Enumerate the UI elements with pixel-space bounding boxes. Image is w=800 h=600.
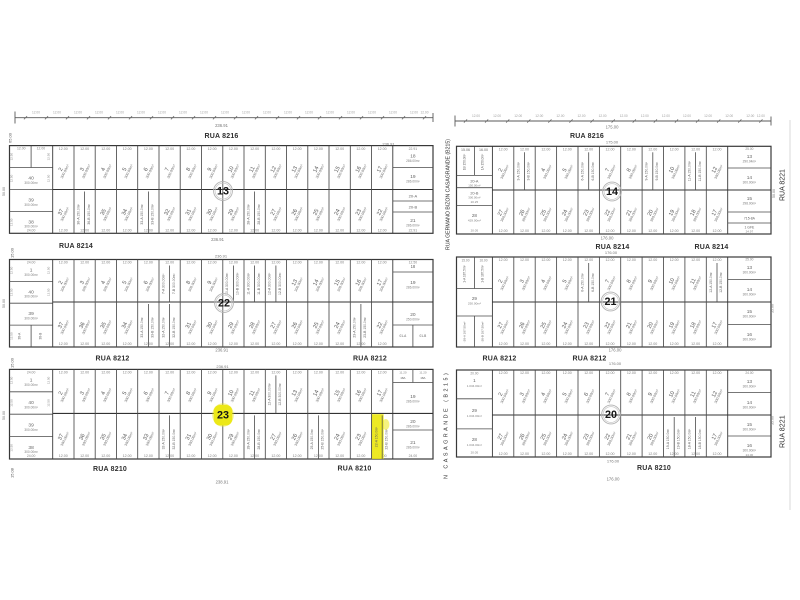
svg-text:12.00: 12.00 <box>520 148 529 152</box>
svg-text:300.00m²: 300.00m² <box>24 181 37 185</box>
svg-text:12.00: 12.00 <box>123 147 132 151</box>
svg-text:33-A 150.0m²: 33-A 150.0m² <box>140 203 144 224</box>
svg-text:1: 1 <box>473 378 476 383</box>
svg-text:12.00: 12.00 <box>335 229 344 233</box>
svg-text:12.00: 12.00 <box>271 454 280 458</box>
svg-text:12.00: 12.00 <box>293 229 302 233</box>
svg-text:23-A 150.0m²: 23-A 150.0m² <box>353 316 357 337</box>
svg-text:300.00m²: 300.00m² <box>743 293 756 297</box>
svg-text:12.00: 12.00 <box>250 371 259 375</box>
svg-text:18A: 18A <box>400 376 405 380</box>
svg-text:12.00: 12.00 <box>271 342 280 346</box>
svg-text:12.00: 12.00 <box>563 342 572 346</box>
svg-text:23-B 150.0m²: 23-B 150.0m² <box>363 316 367 337</box>
svg-text:28-A 150.0m²: 28-A 150.0m² <box>246 203 250 224</box>
svg-text:50.00: 50.00 <box>2 299 6 308</box>
svg-text:11.20: 11.20 <box>419 370 427 374</box>
svg-text:12.00: 12.00 <box>606 452 615 456</box>
svg-text:28: 28 <box>472 213 478 218</box>
svg-text:12.50: 12.50 <box>10 444 14 452</box>
svg-text:12.00: 12.00 <box>59 342 68 346</box>
svg-text:12.00: 12.00 <box>541 452 550 456</box>
svg-text:1-B 187.5m²: 1-B 187.5m² <box>481 265 485 283</box>
svg-text:12.00: 12.00 <box>179 111 187 115</box>
svg-text:1.034.00m²: 1.034.00m² <box>467 414 482 418</box>
svg-text:300.00m²: 300.00m² <box>24 317 37 321</box>
svg-text:286.00m²: 286.00m² <box>406 400 419 404</box>
svg-text:12.00: 12.00 <box>80 261 89 265</box>
svg-text:6-B 150.0m²: 6-B 150.0m² <box>591 272 595 292</box>
svg-text:6-B 150.0m²: 6-B 150.0m² <box>591 161 595 181</box>
svg-text:12.00: 12.00 <box>314 261 323 265</box>
svg-text:12.00: 12.00 <box>563 452 572 456</box>
svg-text:7-A 300.00m²: 7-A 300.00m² <box>161 273 165 294</box>
svg-text:24.00: 24.00 <box>745 371 753 375</box>
svg-text:12.00: 12.00 <box>335 261 344 265</box>
svg-text:33-B 150.0m²: 33-B 150.0m² <box>151 203 155 224</box>
svg-text:12.00: 12.00 <box>713 342 722 346</box>
svg-text:1.034.00m²: 1.034.00m² <box>467 443 482 447</box>
svg-text:12.00: 12.00 <box>250 342 259 346</box>
svg-text:N CASAGRANDE (B215): N CASAGRANDE (B215) <box>444 371 450 479</box>
svg-text:12.00: 12.00 <box>186 229 195 233</box>
svg-text:12.00: 12.00 <box>584 371 593 375</box>
svg-text:12-B 300.00m²: 12-B 300.00m² <box>278 382 282 405</box>
svg-text:12.00: 12.00 <box>520 342 529 346</box>
svg-text:50.00: 50.00 <box>2 411 6 420</box>
svg-text:12.00: 12.00 <box>314 229 323 233</box>
svg-text:300.00m²: 300.00m² <box>24 405 37 409</box>
svg-text:12.00: 12.00 <box>101 342 110 346</box>
svg-text:-28-A 187.50m²: -28-A 187.50m² <box>463 322 467 343</box>
svg-text:RUA 8214: RUA 8214 <box>694 244 728 251</box>
svg-text:12.00: 12.00 <box>250 261 259 265</box>
svg-text:12.00: 12.00 <box>208 342 217 346</box>
svg-text:715-8A: 715-8A <box>744 217 756 221</box>
svg-text:RUA 8214: RUA 8214 <box>59 243 93 250</box>
svg-text:20-B: 20-B <box>409 205 418 210</box>
svg-text:12.00: 12.00 <box>541 229 550 233</box>
svg-text:11-A 150.0m²: 11-A 150.0m² <box>687 160 691 181</box>
svg-text:1A 150.0m²: 1A 150.0m² <box>481 154 485 170</box>
svg-text:12.00: 12.00 <box>293 454 302 458</box>
svg-text:22-B 150.0m²: 22-B 150.0m² <box>384 428 388 449</box>
svg-text:12.50: 12.50 <box>10 288 14 296</box>
svg-text:25-A 150.0m²: 25-A 150.0m² <box>310 428 314 449</box>
svg-text:12.00: 12.00 <box>648 452 657 456</box>
svg-text:12.00: 12.00 <box>293 342 302 346</box>
svg-text:12.00: 12.00 <box>670 148 679 152</box>
svg-text:12.00: 12.00 <box>208 229 217 233</box>
svg-text:176.00: 176.00 <box>609 361 622 366</box>
svg-text:-28-B 187.50m²: -28-B 187.50m² <box>481 322 485 343</box>
svg-text:12.00: 12.00 <box>263 111 271 115</box>
svg-text:12-A 300.00m²: 12-A 300.00m² <box>268 382 272 405</box>
svg-text:RUA 8210: RUA 8210 <box>337 465 371 472</box>
svg-text:12.00: 12.00 <box>347 111 355 115</box>
svg-text:12.00: 12.00 <box>378 147 387 151</box>
svg-text:12-A 150.0m²: 12-A 150.0m² <box>709 271 713 292</box>
svg-text:12.00: 12.00 <box>746 114 754 118</box>
svg-text:33-B 150.0m²: 33-B 150.0m² <box>151 316 155 337</box>
svg-text:286.00m²: 286.00m² <box>406 446 419 450</box>
svg-text:12.00: 12.00 <box>123 454 132 458</box>
svg-text:18-B 150.0m²: 18-B 150.0m² <box>698 428 702 449</box>
svg-text:12.00: 12.00 <box>59 229 68 233</box>
svg-text:28-B 150.0m²: 28-B 150.0m² <box>257 428 261 449</box>
svg-text:22.91: 22.91 <box>409 229 418 233</box>
svg-text:12.00: 12.00 <box>229 342 238 346</box>
svg-text:12.00: 12.00 <box>80 342 89 346</box>
svg-text:RUA 8216: RUA 8216 <box>204 133 238 140</box>
svg-text:238.91: 238.91 <box>216 479 229 484</box>
svg-text:12.00: 12.00 <box>242 111 250 115</box>
svg-text:12.00: 12.00 <box>563 258 572 262</box>
svg-text:11-A 300.00m²: 11-A 300.00m² <box>246 272 250 295</box>
svg-text:12.00: 12.00 <box>165 371 174 375</box>
svg-text:12.00: 12.00 <box>378 371 387 375</box>
svg-text:12-A 300.00m²: 12-A 300.00m² <box>268 272 272 295</box>
svg-text:12.50: 12.50 <box>10 153 14 161</box>
svg-text:12.00: 12.00 <box>520 258 529 262</box>
svg-text:36-A 150.0m²: 36-A 150.0m² <box>76 203 80 224</box>
svg-text:12.00: 12.00 <box>186 371 195 375</box>
svg-text:300.00m²: 300.00m² <box>743 385 756 389</box>
svg-text:22: 22 <box>218 298 230 310</box>
svg-text:19-A 150.0m²: 19-A 150.0m² <box>666 428 670 449</box>
svg-text:20.25: 20.25 <box>471 200 479 204</box>
svg-text:65.00: 65.00 <box>8 132 13 143</box>
svg-text:12.00: 12.00 <box>314 342 323 346</box>
svg-text:300.00m²: 300.00m² <box>743 315 756 319</box>
svg-text:22.91: 22.91 <box>409 147 418 151</box>
svg-text:23: 23 <box>217 410 229 422</box>
svg-text:12.00: 12.00 <box>293 147 302 151</box>
svg-text:12.00: 12.00 <box>229 147 238 151</box>
svg-text:12.00: 12.00 <box>520 371 529 375</box>
svg-text:12.50: 12.50 <box>10 218 14 226</box>
svg-text:12.00: 12.00 <box>378 229 387 233</box>
svg-text:12.00: 12.00 <box>563 229 572 233</box>
svg-text:12.00: 12.00 <box>314 371 323 375</box>
svg-text:12.00: 12.00 <box>101 454 110 458</box>
svg-text:12.00: 12.00 <box>670 258 679 262</box>
svg-text:18-A 150.0m²: 18-A 150.0m² <box>687 428 691 449</box>
svg-text:12.50: 12.50 <box>10 266 14 274</box>
svg-text:12.00: 12.00 <box>335 371 344 375</box>
svg-text:12.00: 12.00 <box>271 261 280 265</box>
svg-text:6-A 150.0m²: 6-A 150.0m² <box>581 272 585 291</box>
svg-text:RUA 8216: RUA 8216 <box>570 133 604 140</box>
svg-text:12.00: 12.00 <box>563 148 572 152</box>
svg-text:12.00: 12.00 <box>389 111 397 115</box>
svg-text:24.00: 24.00 <box>746 453 754 457</box>
svg-text:36-B 150.0m²: 36-B 150.0m² <box>87 203 91 224</box>
svg-text:12.00: 12.00 <box>293 261 302 265</box>
svg-text:12.00: 12.00 <box>101 261 110 265</box>
svg-text:286.00m²: 286.00m² <box>406 224 419 228</box>
svg-text:15.00: 15.00 <box>462 259 470 263</box>
svg-text:12.00: 12.00 <box>59 261 68 265</box>
svg-text:25.00: 25.00 <box>745 147 753 151</box>
svg-text:12.00: 12.00 <box>305 111 313 115</box>
svg-text:12.00: 12.00 <box>541 148 550 152</box>
svg-text:300.00m²: 300.00m² <box>743 428 756 432</box>
svg-text:176.00: 176.00 <box>607 458 620 463</box>
svg-text:33-A 150.0m²: 33-A 150.0m² <box>140 316 144 337</box>
svg-text:15.00: 15.00 <box>10 247 15 258</box>
svg-text:12.00: 12.00 <box>74 111 82 115</box>
svg-text:01-B: 01-B <box>420 334 427 338</box>
svg-text:10-B 300.00m²: 10-B 300.00m² <box>236 272 240 295</box>
svg-text:12.50: 12.50 <box>47 376 51 384</box>
svg-text:12.00: 12.00 <box>541 371 550 375</box>
svg-text:1-A 187.5m²: 1-A 187.5m² <box>463 265 467 282</box>
svg-text:300.00m²: 300.00m² <box>743 406 756 410</box>
svg-text:12.00: 12.00 <box>578 114 586 118</box>
svg-text:6-A 150.0m²: 6-A 150.0m² <box>581 161 585 180</box>
svg-text:28-A 150.0m²: 28-A 150.0m² <box>246 428 250 449</box>
svg-text:12.00: 12.00 <box>606 148 615 152</box>
svg-text:9-B 150.0m²: 9-B 150.0m² <box>655 161 659 181</box>
svg-text:12.00: 12.00 <box>691 229 700 233</box>
svg-text:12.00: 12.00 <box>165 229 174 233</box>
svg-text:12.00: 12.00 <box>101 147 110 151</box>
svg-text:12.00: 12.00 <box>284 111 292 115</box>
svg-text:RUA 8212: RUA 8212 <box>353 355 387 362</box>
svg-text:7-B 300.00m²: 7-B 300.00m² <box>172 273 176 294</box>
svg-text:12.00: 12.00 <box>356 229 365 233</box>
svg-text:32-B 150.0m²: 32-B 150.0m² <box>172 316 176 337</box>
svg-text:300.00m²: 300.00m² <box>468 195 480 199</box>
svg-text:10-A 300.00m²: 10-A 300.00m² <box>225 272 229 295</box>
svg-text:1.034.00m²: 1.034.00m² <box>467 384 482 388</box>
svg-text:11-B 150.0m²: 11-B 150.0m² <box>698 160 702 181</box>
svg-text:32-B 150.0m²: 32-B 150.0m² <box>172 428 176 449</box>
svg-text:12.00: 12.00 <box>144 261 153 265</box>
svg-text:12.50: 12.50 <box>10 399 14 407</box>
svg-text:12.50: 12.50 <box>10 174 14 182</box>
svg-text:12.00: 12.00 <box>293 371 302 375</box>
svg-text:12.00: 12.00 <box>662 114 670 118</box>
svg-text:12.00: 12.00 <box>520 229 529 233</box>
svg-text:429.00m²: 429.00m² <box>468 219 481 223</box>
svg-text:12.00: 12.00 <box>599 114 607 118</box>
svg-text:12.00: 12.00 <box>208 261 217 265</box>
svg-text:12.00: 12.00 <box>123 261 132 265</box>
svg-text:11.20: 11.20 <box>399 370 407 374</box>
svg-text:12.00: 12.00 <box>186 342 195 346</box>
svg-text:286.00m²: 286.00m² <box>406 425 419 429</box>
svg-text:12.00: 12.00 <box>620 114 628 118</box>
svg-text:38-B: 38-B <box>39 333 43 340</box>
svg-text:50.00: 50.00 <box>2 187 6 196</box>
svg-text:300.00m²: 300.00m² <box>24 203 37 207</box>
svg-text:RUA 8212: RUA 8212 <box>572 355 606 362</box>
svg-text:236.91: 236.91 <box>216 364 229 369</box>
svg-text:250.00m²: 250.00m² <box>468 302 481 306</box>
svg-text:12.00: 12.00 <box>335 147 344 151</box>
svg-text:12.00: 12.00 <box>499 452 508 456</box>
svg-text:12.50: 12.50 <box>10 376 14 384</box>
svg-text:12.00: 12.00 <box>691 342 700 346</box>
svg-text:12.00: 12.00 <box>356 261 365 265</box>
svg-text:236.91: 236.91 <box>215 253 228 258</box>
svg-text:12.00: 12.00 <box>101 371 110 375</box>
svg-text:24.00: 24.00 <box>27 454 36 458</box>
svg-text:13: 13 <box>217 186 229 198</box>
svg-text:12.00: 12.00 <box>535 114 543 118</box>
svg-text:12.50: 12.50 <box>47 153 51 161</box>
svg-text:12.00: 12.00 <box>493 114 501 118</box>
svg-text:12.00: 12.00 <box>670 342 679 346</box>
svg-text:12.00: 12.00 <box>584 342 593 346</box>
svg-text:236.91: 236.91 <box>215 347 228 352</box>
svg-text:12.00: 12.00 <box>229 229 238 233</box>
svg-text:28-B 150.0m²: 28-B 150.0m² <box>257 203 261 224</box>
svg-text:24.00: 24.00 <box>27 261 36 265</box>
svg-text:RUA 8212: RUA 8212 <box>482 355 516 362</box>
svg-text:20.00: 20.00 <box>470 372 478 376</box>
svg-text:12.00: 12.00 <box>378 261 387 265</box>
svg-text:12.00: 12.00 <box>335 454 344 458</box>
svg-text:12.00: 12.00 <box>713 452 722 456</box>
svg-text:12.00: 12.00 <box>627 229 636 233</box>
svg-text:300.00m²: 300.00m² <box>24 428 37 432</box>
svg-text:12.50: 12.50 <box>47 288 51 296</box>
svg-text:12.00: 12.00 <box>208 371 217 375</box>
svg-text:12.00: 12.00 <box>80 147 89 151</box>
svg-text:20.05: 20.05 <box>471 229 479 233</box>
svg-text:236.91: 236.91 <box>211 237 224 242</box>
svg-text:24.00: 24.00 <box>409 454 418 458</box>
svg-text:12.00: 12.00 <box>648 258 657 262</box>
svg-text:12.50: 12.50 <box>47 266 51 274</box>
svg-text:RUA GERMANO BIZON CASAGRANDE (: RUA GERMANO BIZON CASAGRANDE (B215) <box>446 139 452 250</box>
svg-text:12.00: 12.00 <box>144 371 153 375</box>
svg-text:RUA 8210: RUA 8210 <box>637 465 671 472</box>
svg-text:RUA 8221: RUA 8221 <box>778 415 787 448</box>
svg-text:176.00: 176.00 <box>609 347 622 352</box>
svg-text:12.00: 12.00 <box>606 229 615 233</box>
svg-text:15.06: 15.06 <box>461 148 470 152</box>
svg-text:12.00: 12.00 <box>713 258 722 262</box>
svg-text:286.00m²: 286.00m² <box>406 180 419 184</box>
svg-text:300.00m²: 300.00m² <box>743 181 756 185</box>
svg-text:21: 21 <box>604 296 616 308</box>
svg-text:12.00: 12.00 <box>683 114 691 118</box>
svg-text:12.00: 12.00 <box>514 114 522 118</box>
svg-text:12.00: 12.00 <box>116 111 124 115</box>
svg-text:12.00: 12.00 <box>101 229 110 233</box>
svg-text:12.00: 12.00 <box>648 229 657 233</box>
svg-text:12.00: 12.00 <box>95 111 103 115</box>
svg-text:19-B 150.0m²: 19-B 150.0m² <box>676 428 680 449</box>
svg-text:12.00: 12.00 <box>59 454 68 458</box>
svg-text:1B 150.0m²: 1B 150.0m² <box>463 154 467 170</box>
svg-text:29: 29 <box>472 408 478 413</box>
svg-text:12.00: 12.00 <box>208 454 217 458</box>
svg-text:12.00: 12.00 <box>123 371 132 375</box>
svg-text:12.00: 12.00 <box>691 148 700 152</box>
svg-text:286.00m²: 286.00m² <box>406 159 419 163</box>
svg-text:12-B 150.0m²: 12-B 150.0m² <box>719 271 723 292</box>
svg-text:12.00: 12.00 <box>499 371 508 375</box>
svg-text:22-A 150.0m²: 22-A 150.0m² <box>375 426 379 447</box>
svg-text:20-A: 20-A <box>409 194 418 199</box>
svg-text:28: 28 <box>472 437 478 442</box>
svg-text:01-A: 01-A <box>400 334 408 338</box>
svg-text:12.00: 12.00 <box>627 452 636 456</box>
svg-text:12.00: 12.00 <box>648 371 657 375</box>
svg-text:12.00: 12.00 <box>627 371 636 375</box>
svg-text:12.00: 12.00 <box>563 371 572 375</box>
svg-text:12.00: 12.00 <box>627 148 636 152</box>
svg-text:300.00m²: 300.00m² <box>743 338 756 342</box>
svg-text:12.00: 12.00 <box>670 229 679 233</box>
svg-text:286.00m²: 286.00m² <box>406 286 419 290</box>
svg-text:9-A 150.0m²: 9-A 150.0m² <box>645 161 649 180</box>
svg-text:176.00: 176.00 <box>601 235 614 240</box>
svg-text:12.00: 12.00 <box>186 261 195 265</box>
svg-text:12.00: 12.00 <box>53 111 61 115</box>
svg-text:3-A 150.0m²: 3-A 150.0m² <box>516 161 520 180</box>
svg-text:12.00: 12.00 <box>186 454 195 458</box>
svg-text:15.00: 15.00 <box>10 357 15 368</box>
svg-text:12.00: 12.00 <box>32 111 40 115</box>
svg-text:12.00: 12.00 <box>356 454 365 458</box>
svg-text:24.00: 24.00 <box>27 371 36 375</box>
svg-text:12.00: 12.00 <box>314 147 323 151</box>
svg-text:300.00m²: 300.00m² <box>24 273 37 277</box>
svg-text:175.00: 175.00 <box>606 140 619 145</box>
svg-text:12.00: 12.00 <box>704 114 712 118</box>
svg-text:11-B 300.00m²: 11-B 300.00m² <box>257 272 261 295</box>
svg-text:12.00: 12.00 <box>165 261 174 265</box>
svg-text:12.00: 12.00 <box>713 229 722 233</box>
svg-text:12.00: 12.00 <box>499 258 508 262</box>
svg-text:298.00m²: 298.00m² <box>743 202 756 206</box>
svg-text:3-B 150.0m²: 3-B 150.0m² <box>527 161 531 181</box>
svg-text:12.00: 12.00 <box>229 261 238 265</box>
svg-text:12.00: 12.00 <box>472 114 480 118</box>
svg-text:12.00: 12.00 <box>725 114 733 118</box>
svg-text:12.00: 12.00 <box>541 258 550 262</box>
svg-text:32-A 150.0m²: 32-A 150.0m² <box>161 316 165 337</box>
svg-text:12.00: 12.00 <box>59 147 68 151</box>
svg-text:12.00: 12.00 <box>541 342 550 346</box>
svg-text:12.00: 12.00 <box>670 371 679 375</box>
svg-text:300.00m²: 300.00m² <box>24 383 37 387</box>
svg-text:38-A: 38-A <box>18 332 22 340</box>
svg-text:12.00: 12.00 <box>499 148 508 152</box>
svg-text:12-B 300.00m²: 12-B 300.00m² <box>278 272 282 295</box>
svg-text:300.00m²: 300.00m² <box>743 271 756 275</box>
svg-text:50.00: 50.00 <box>772 189 776 198</box>
svg-text:12.00: 12.00 <box>250 147 259 151</box>
svg-text:12.00: 12.00 <box>137 111 145 115</box>
svg-text:12.00: 12.00 <box>584 258 593 262</box>
svg-text:20: 20 <box>605 409 617 421</box>
svg-text:12.00: 12.00 <box>123 229 132 233</box>
svg-text:16.00: 16.00 <box>480 259 488 263</box>
svg-text:12.00: 12.00 <box>641 114 649 118</box>
svg-text:12.00: 12.00 <box>221 111 229 115</box>
svg-text:12.50: 12.50 <box>10 332 14 340</box>
svg-text:12.00: 12.00 <box>584 148 593 152</box>
svg-text:12.00: 12.00 <box>378 342 387 346</box>
svg-text:12.00: 12.00 <box>186 147 195 151</box>
